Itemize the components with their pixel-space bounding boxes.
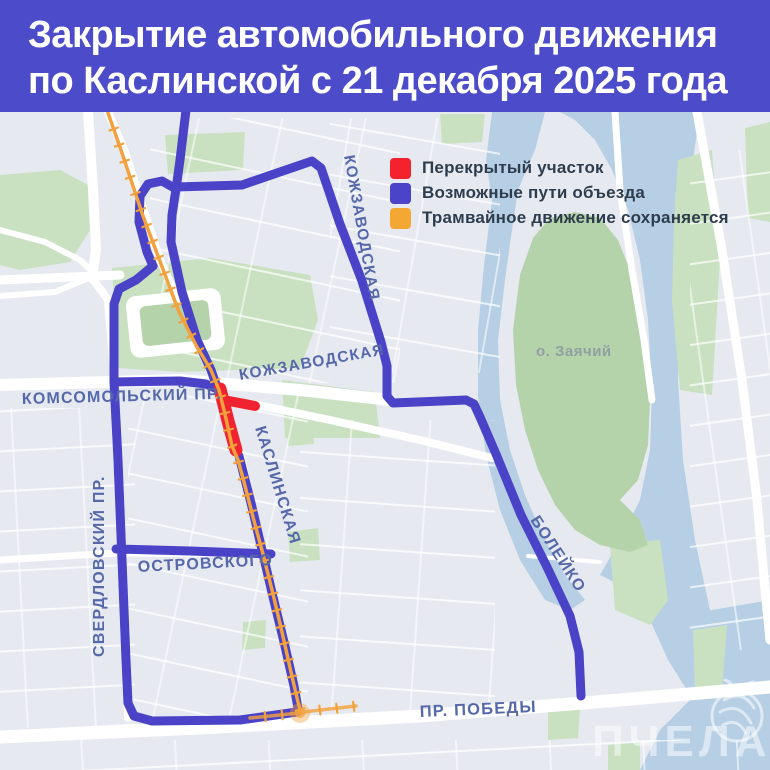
map-line bbox=[229, 401, 255, 406]
title-line-2: по Каслинской с 21 декабря 2025 года bbox=[28, 59, 770, 105]
legend-item: Перекрытый участок bbox=[390, 156, 729, 180]
map-area bbox=[693, 625, 727, 690]
legend: Перекрытый участокВозможные пути объезда… bbox=[390, 156, 729, 231]
legend-item: Возможные пути объезда bbox=[390, 181, 729, 205]
map-line bbox=[0, 275, 120, 280]
legend-item: Трамвайное движение сохраняется bbox=[390, 206, 729, 230]
infographic: КОМСОМОЛЬСКИЙ ПР.КОЖЗАВОДСКАЯКОЖЗАВОДСКА… bbox=[0, 0, 770, 770]
street-label: СВЕРДЛОВСКИЙ ПР. bbox=[89, 475, 108, 657]
title-banner: Закрытие автомобильного движения по Касл… bbox=[0, 0, 770, 112]
legend-label: Перекрытый участок bbox=[422, 158, 604, 178]
map-canvas: КОМСОМОЛЬСКИЙ ПР.КОЖЗАВОДСКАЯКОЖЗАВОДСКА… bbox=[0, 0, 770, 770]
legend-swatch bbox=[390, 158, 411, 179]
legend-label: Трамвайное движение сохраняется bbox=[422, 208, 729, 228]
legend-swatch bbox=[390, 183, 411, 204]
island-label: о. Заячий bbox=[536, 343, 612, 360]
map-area bbox=[440, 114, 485, 144]
legend-label: Возможные пути объезда bbox=[422, 183, 645, 203]
map-area bbox=[548, 708, 580, 740]
legend-swatch bbox=[390, 208, 411, 229]
title-line-1: Закрытие автомобильного движения bbox=[28, 13, 770, 59]
